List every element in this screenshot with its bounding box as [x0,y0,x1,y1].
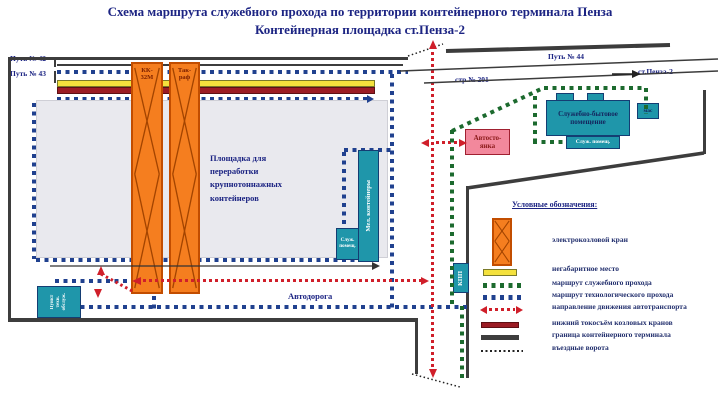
crane-bracing-icon [171,64,198,292]
traffic-arrow-loop-up-icon [97,266,105,275]
legend-gates-icon [481,350,523,352]
entrance-gate-bottom-icon [412,374,460,387]
service-route-annex-row [533,140,565,144]
crane-bracing-icon [494,220,510,264]
rail-44-bar [446,45,670,51]
oversize-strip [57,80,375,87]
traffic-route-horizontal [137,279,425,282]
service-route-column-upper [450,130,454,306]
tech-route-yard-bottom [36,258,376,262]
building-201-label: стр.№ 201 [455,76,489,85]
service-route-right-drop [644,88,648,114]
traffic-route-to-parking [436,141,461,144]
boundary-wall-left [8,57,11,322]
yard-service-room-label: Служ. помещ. [337,238,358,250]
parking-label: Автосто- янка [474,134,502,151]
page-title: Схема маршрута служебного прохода по тер… [0,4,720,20]
legend-current-rail-icon [481,322,519,328]
tech-route-yard-left [32,103,36,259]
road-label: Автодорога [288,292,332,302]
legend-header: Условные обозначения: [512,200,597,209]
traffic-route-vertical [431,46,434,372]
legend-boundary-icon [481,335,519,340]
checkpoint-building: КПП [453,263,469,293]
legend-label-boundary: граница контейнерного терминала [552,331,671,340]
checkpoint-label: КПП [457,271,465,286]
parking-building: Автосто- янка [465,129,510,155]
yard-label: Площадка для переработки крупнотоннажных… [210,152,282,205]
legend-label-tech-route: маршрут технологического прохода [552,291,673,300]
service-route-column-lower [460,306,464,378]
tech-route-inner-column [342,152,346,228]
boundary-wall-right-upper [703,90,706,154]
service-building-label: Служебно-бытовое помещение [558,110,618,127]
legend-label-traffic: направление движения автотранспорта [552,303,687,312]
tech-route-top-row1 [57,70,408,74]
tech-route-road-row [55,305,467,309]
track-43-label: Путь № 43 [10,70,46,79]
small-containers-building: Мел. контейнеры [358,150,379,262]
crane-takraf-label: Так- раф [171,67,198,81]
legend-tech-route-icon [483,295,521,300]
boundary-wall-bottom [8,318,418,322]
service-route-building-drop [533,96,537,140]
traffic-route-loop-diagonal [101,274,134,292]
traffic-arrow-loop-down-icon [94,289,102,298]
legend-crane-icon [492,218,512,266]
tech-route-right-column [390,74,394,308]
crane-bracing-icon [133,64,161,292]
crane-kk32m-label: КК- 32М [133,67,161,81]
service-route-diagonal [452,89,541,131]
legend-label-gates: въездные ворота [552,344,609,353]
page-subtitle: Контейнерная площадка ст.Пенза-2 [0,22,720,38]
yard-service-room: Служ. помещ. [336,228,359,260]
legend-label-service-route: маршрут служебного прохода [552,279,652,288]
boundary-wall-slant [467,153,704,188]
legend-label-crane: электрокозловой кран [552,236,628,245]
traffic-arrow-left-mid-icon [421,139,429,147]
yard-road-arrow-icon [372,262,380,270]
station-label: ст.Пенза-2 [638,68,673,77]
legend-oversize-icon [483,269,517,276]
duty-point-building: Пункт техн. обслуж. [37,286,81,318]
legend-label-current-rail: нижний токосъём козловых кранов [552,319,673,328]
service-building-annex: Служ. помещ. [566,136,620,149]
gantry-crane-takraf: Так- раф [169,62,200,294]
track-43-tick [54,71,56,83]
legend-label-oversize: негабаритное место [552,265,619,274]
duty-point-label: Пункт техн. обслуж. [50,293,68,310]
boundary-wall-step [415,318,418,374]
service-route-top-row [544,86,644,90]
entrance-gate-top-icon [408,44,443,56]
rail-42-line [57,64,403,66]
track-44-label: Путь № 44 [548,53,584,62]
current-rail-strip [57,87,375,94]
gantry-crane-kk32m: КК- 32М [131,62,163,294]
small-containers-label: Мел. контейнеры [365,180,373,232]
service-building: Служебно-бытовое помещение [546,100,630,136]
boundary-wall-top [8,57,408,60]
terminal-scheme: Схема маршрута служебного прохода по тер… [0,0,720,402]
legend-service-route-icon [483,283,521,288]
service-building-annex-label: Служ. помещ. [576,139,611,146]
utility-building: мас [637,103,659,119]
